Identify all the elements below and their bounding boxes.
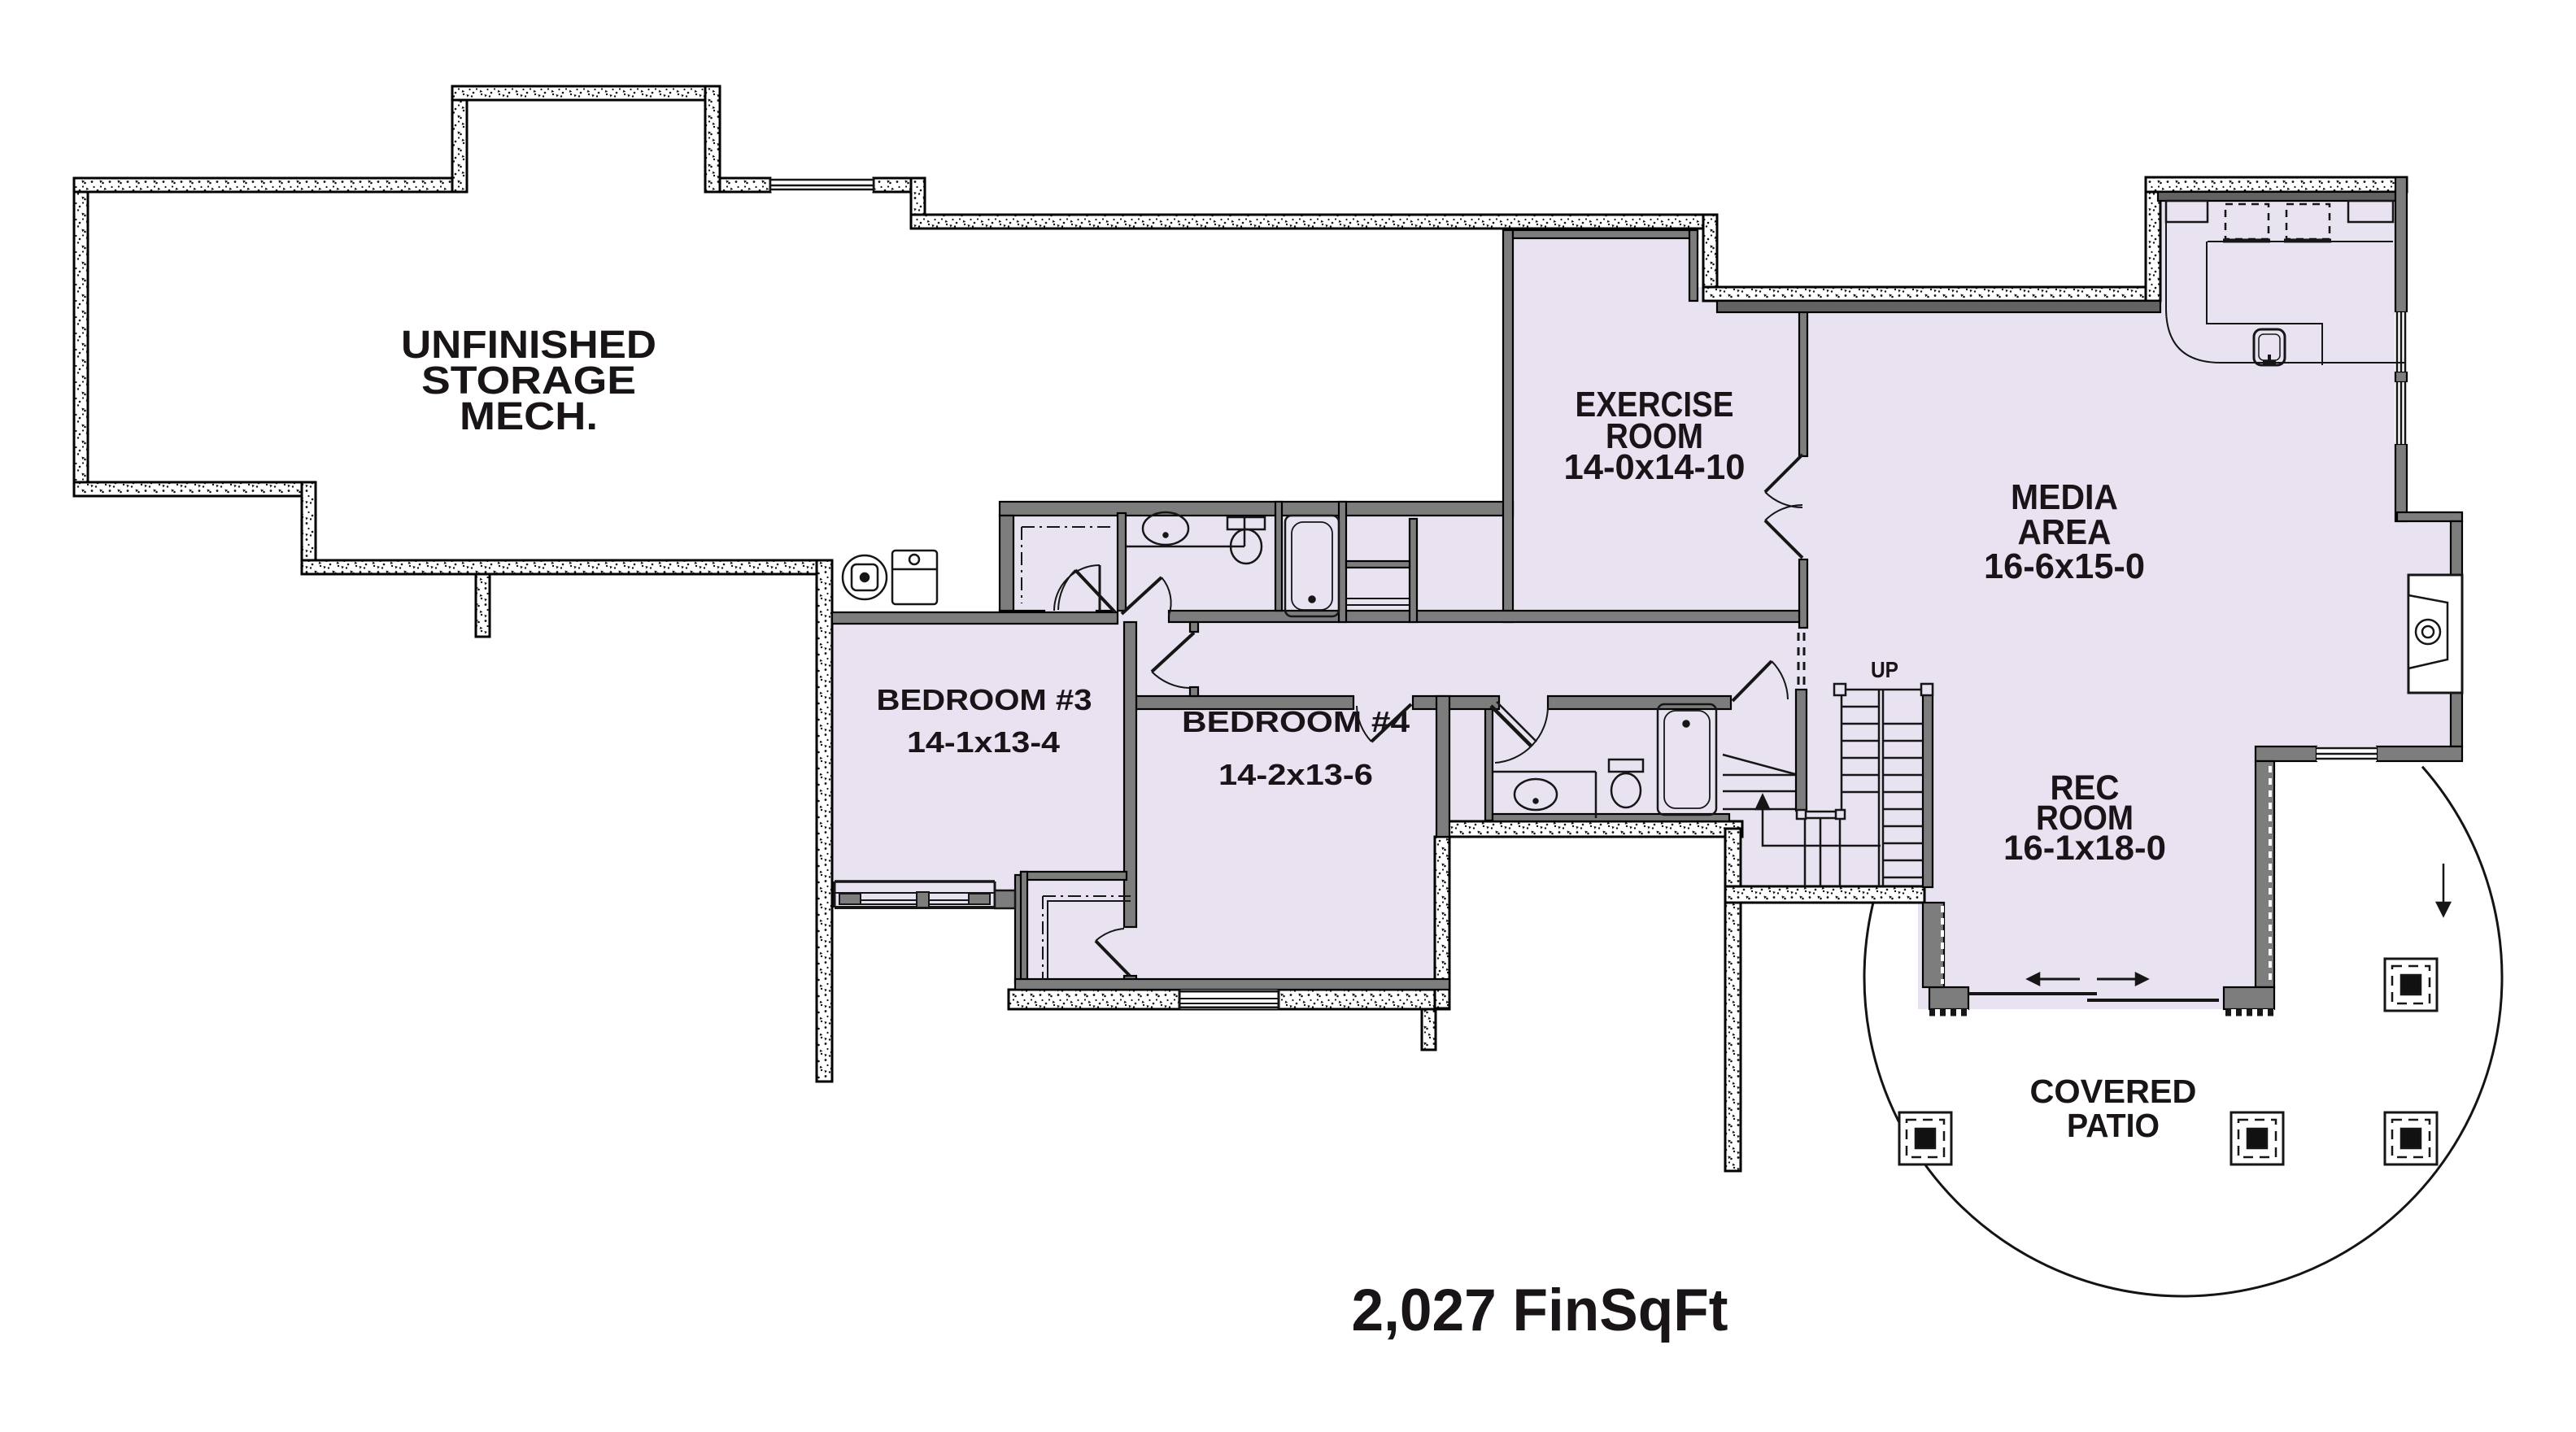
svg-text:2,027 FinSqFt: 2,027 FinSqFt xyxy=(1352,1277,1728,1343)
svg-text:14-0x14-10: 14-0x14-10 xyxy=(1564,447,1746,487)
svg-text:16-1x18-0: 16-1x18-0 xyxy=(2003,829,2166,868)
svg-text:UP: UP xyxy=(1871,657,1898,682)
svg-text:16-6x15-0: 16-6x15-0 xyxy=(1984,546,2145,586)
svg-text:PATIO: PATIO xyxy=(2067,1107,2160,1144)
svg-text:14-1x13-4: 14-1x13-4 xyxy=(907,725,1060,759)
svg-text:MEDIA: MEDIA xyxy=(2011,477,2118,517)
svg-text:COVERED: COVERED xyxy=(2030,1073,2197,1110)
svg-text:BEDROOM #3: BEDROOM #3 xyxy=(877,683,1092,716)
svg-text:14-2x13-6: 14-2x13-6 xyxy=(1218,758,1373,791)
svg-text:MECH.: MECH. xyxy=(460,395,598,438)
svg-text:BEDROOM #4: BEDROOM #4 xyxy=(1182,705,1410,738)
